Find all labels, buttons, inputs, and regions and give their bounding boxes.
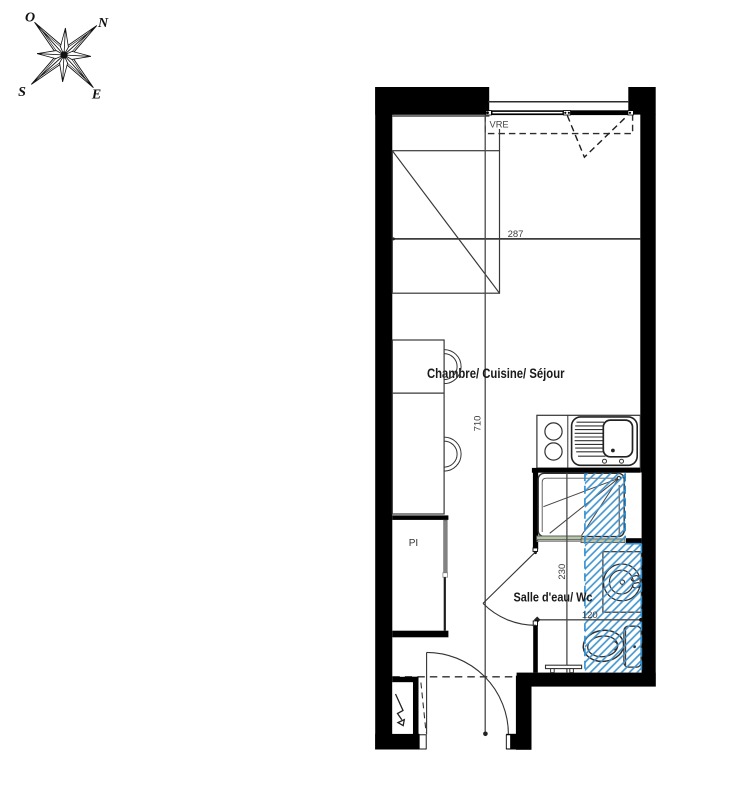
svg-text:VRE: VRE [490, 119, 509, 129]
svg-text:PI: PI [409, 538, 418, 549]
svg-text:287: 287 [508, 229, 524, 240]
svg-text:230: 230 [557, 564, 568, 580]
svg-text:N: N [97, 16, 109, 31]
svg-text:120: 120 [582, 610, 598, 621]
svg-text:O: O [25, 11, 35, 26]
svg-text:S: S [18, 85, 26, 100]
svg-text:E: E [91, 88, 101, 103]
svg-text:710: 710 [472, 416, 483, 432]
svg-text:Salle d'eau/ Wc: Salle d'eau/ Wc [514, 589, 593, 604]
